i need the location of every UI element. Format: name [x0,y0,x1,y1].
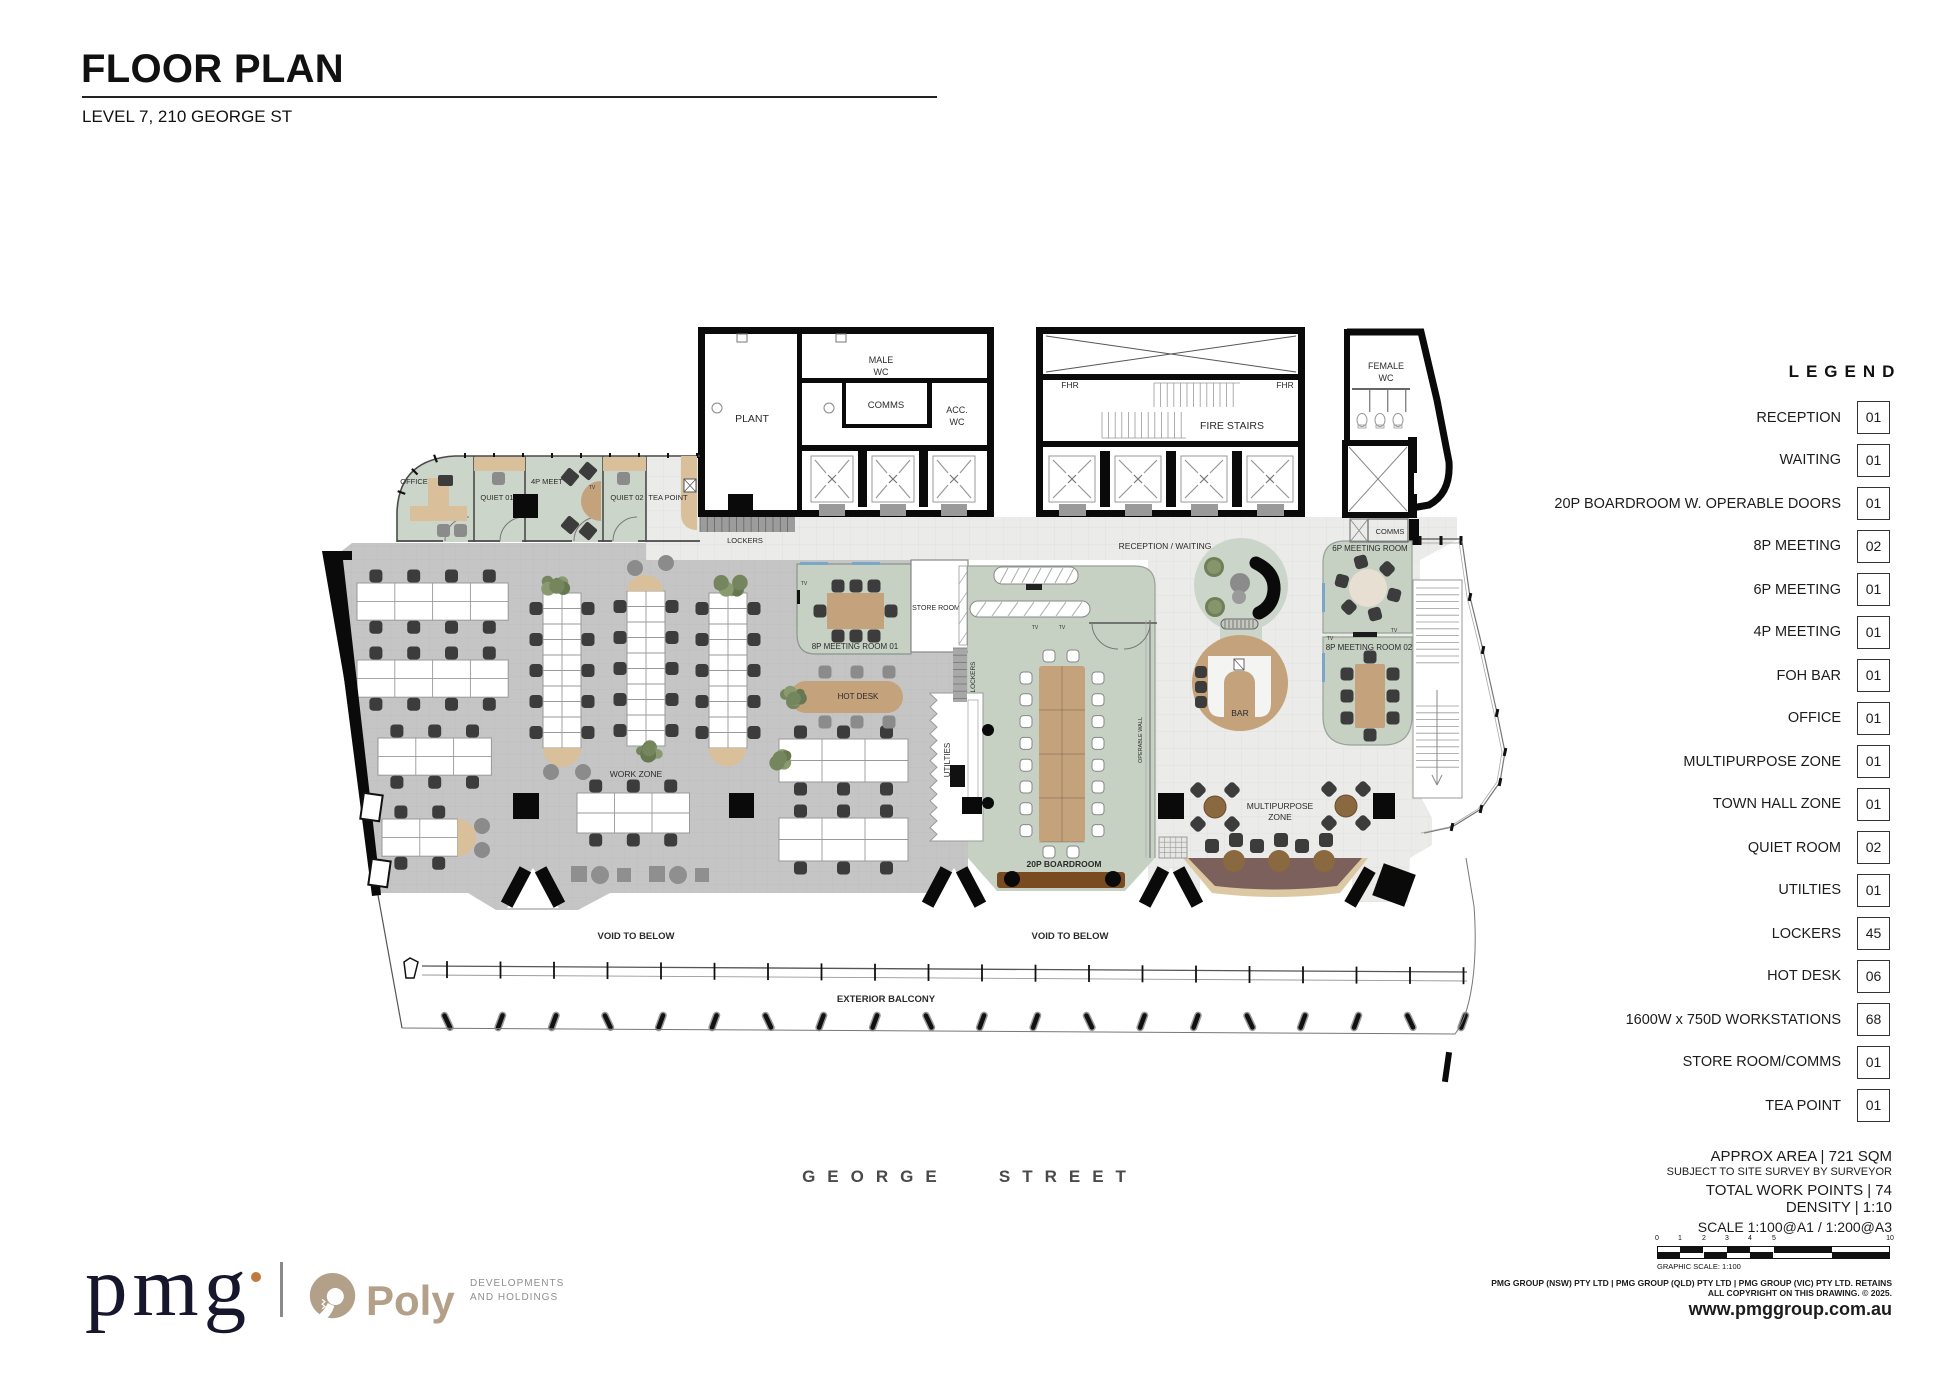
svg-text:TV: TV [589,485,596,491]
svg-text:WC: WC [874,367,889,377]
svg-text:TV: TV [1032,625,1039,631]
svg-text:TEA POINT: TEA POINT [648,493,688,502]
svg-text:LOCKERS: LOCKERS [970,661,977,693]
svg-text:VOID TO BELOW: VOID TO BELOW [598,931,675,942]
svg-text:8P MEETING ROOM 02: 8P MEETING ROOM 02 [1326,643,1413,652]
svg-text:TV: TV [801,581,808,587]
svg-text:HOT DESK: HOT DESK [838,692,879,701]
svg-text:20P BOARDROOM: 20P BOARDROOM [1027,859,1102,869]
svg-text:EXTERIOR BALCONY: EXTERIOR BALCONY [837,994,936,1005]
svg-text:WC: WC [1379,373,1394,383]
svg-text:TV: TV [1059,625,1066,631]
svg-text:WC: WC [950,417,965,427]
svg-text:FHR: FHR [1276,380,1293,390]
svg-text:PLANT: PLANT [735,413,769,425]
svg-text:FHR: FHR [1061,380,1078,390]
svg-text:OPERABLE WALL: OPERABLE WALL [1138,717,1144,763]
svg-text:QUIET 02: QUIET 02 [610,493,643,502]
svg-text:RECEPTION / WAITING: RECEPTION / WAITING [1119,541,1212,551]
svg-text:STORE ROOM: STORE ROOM [912,605,960,612]
svg-text:LOCKERS: LOCKERS [727,536,763,545]
svg-text:COMMS: COMMS [1376,527,1405,536]
svg-text:QUIET 01: QUIET 01 [480,493,513,502]
svg-text:4P MEET: 4P MEET [531,477,563,486]
svg-text:8P MEETING ROOM 01: 8P MEETING ROOM 01 [812,642,899,651]
svg-text:MALE: MALE [869,355,894,365]
svg-text:VOID TO BELOW: VOID TO BELOW [1032,931,1109,942]
svg-text:ZONE: ZONE [1268,812,1292,822]
svg-text:WORK ZONE: WORK ZONE [610,769,663,779]
svg-text:OFFICE: OFFICE [400,477,428,486]
svg-text:ACC.: ACC. [946,405,968,415]
svg-text:FEMALE: FEMALE [1368,361,1404,371]
svg-text:COMMS: COMMS [868,400,904,411]
